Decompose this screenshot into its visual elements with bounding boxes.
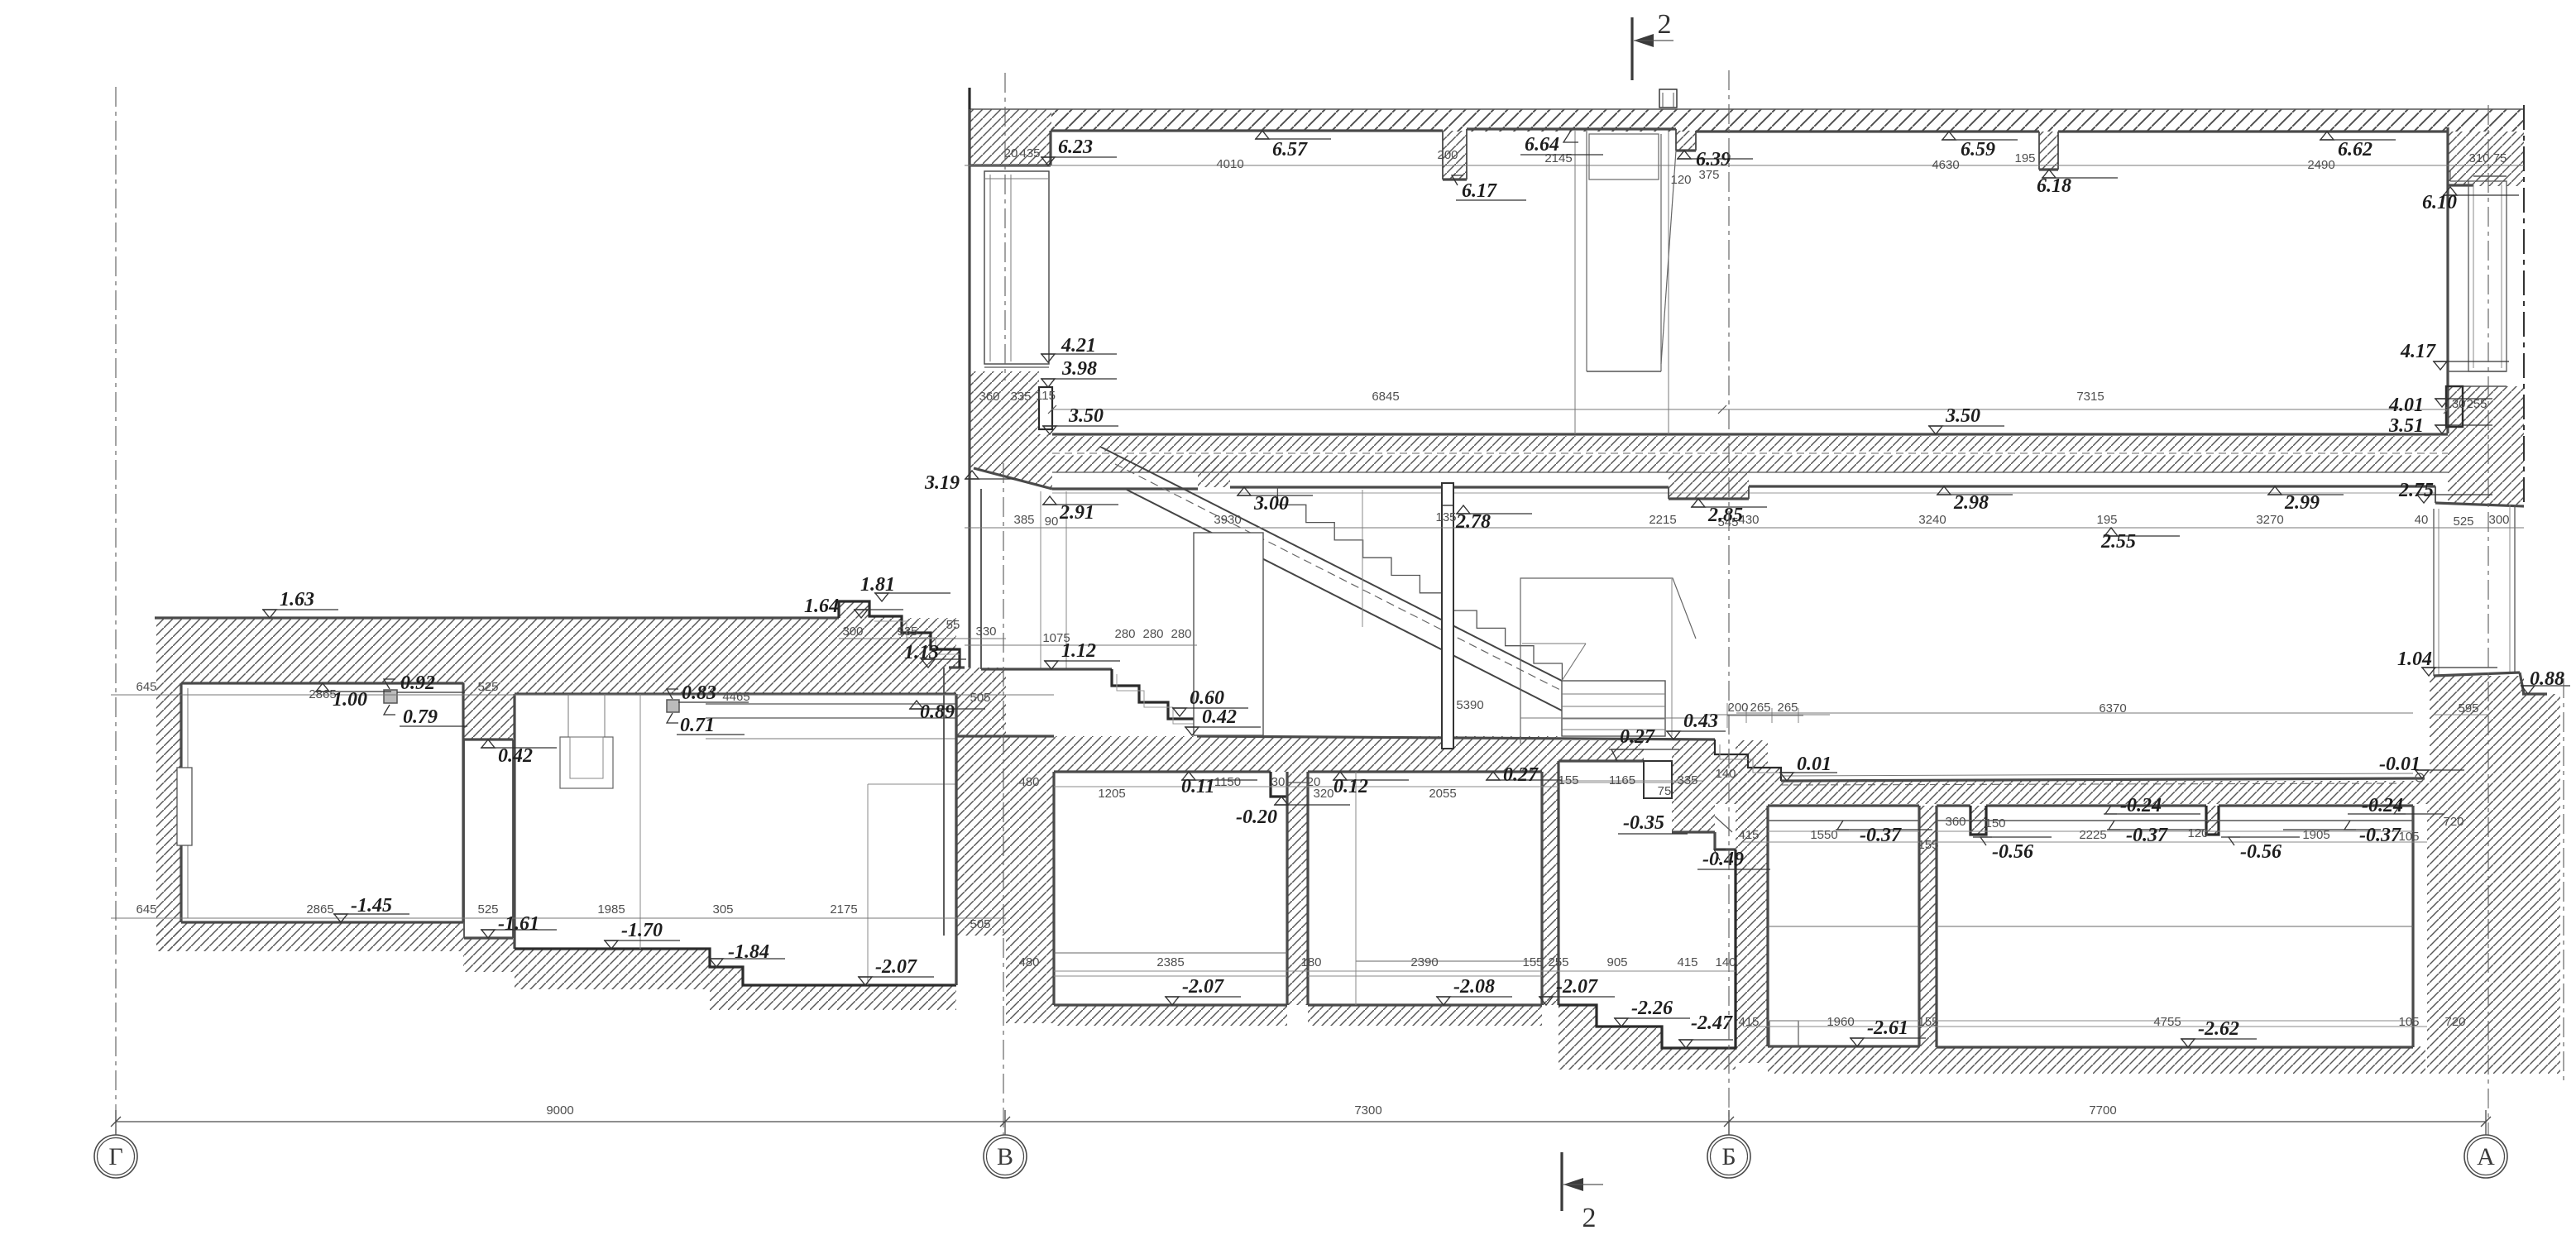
svg-text:-2.07: -2.07 — [1182, 976, 1224, 998]
svg-text:1.04: 1.04 — [2397, 649, 2432, 670]
svg-text:-0.24: -0.24 — [2120, 795, 2162, 816]
svg-text:-0.01: -0.01 — [2379, 754, 2420, 775]
svg-text:4.21: 4.21 — [1061, 335, 1096, 357]
svg-text:1.00: 1.00 — [333, 689, 367, 711]
svg-text:-0.56: -0.56 — [2240, 841, 2282, 863]
svg-text:335: 335 — [1677, 773, 1697, 787]
svg-text:2.85: 2.85 — [1707, 505, 1743, 526]
svg-text:4.17: 4.17 — [2400, 341, 2436, 362]
svg-text:-2.26: -2.26 — [1631, 998, 1673, 1019]
svg-text:75: 75 — [2493, 151, 2507, 165]
svg-text:1150: 1150 — [1214, 775, 1241, 789]
svg-text:265: 265 — [1777, 701, 1798, 715]
svg-text:6.59: 6.59 — [1961, 139, 1995, 160]
svg-text:-0.56: -0.56 — [1992, 841, 2033, 863]
svg-text:6.57: 6.57 — [1272, 139, 1308, 160]
svg-text:180: 180 — [1300, 955, 1321, 969]
svg-text:0.42: 0.42 — [498, 745, 533, 767]
svg-text:415: 415 — [1738, 1015, 1759, 1029]
svg-text:435: 435 — [1019, 146, 1040, 160]
svg-text:305: 305 — [712, 902, 733, 917]
svg-text:2.98: 2.98 — [1953, 492, 1989, 514]
svg-text:0.01: 0.01 — [1797, 754, 1831, 775]
svg-text:120: 120 — [2187, 826, 2208, 840]
svg-text:2215: 2215 — [1649, 513, 1676, 527]
svg-text:2.75: 2.75 — [2398, 480, 2434, 501]
svg-text:2.55: 2.55 — [2100, 531, 2136, 553]
svg-text:6845: 6845 — [1372, 390, 1399, 404]
svg-text:2: 2 — [1582, 1203, 1597, 1233]
svg-text:1.12: 1.12 — [1061, 640, 1096, 662]
svg-text:280: 280 — [1142, 627, 1163, 641]
svg-text:-0.49: -0.49 — [1702, 849, 1744, 870]
svg-text:480: 480 — [1018, 775, 1039, 789]
svg-text:525: 525 — [2453, 515, 2473, 529]
svg-text:115: 115 — [1036, 389, 1056, 403]
svg-text:1960: 1960 — [1827, 1015, 1854, 1029]
svg-text:1550: 1550 — [1810, 828, 1837, 842]
svg-text:0.88: 0.88 — [2530, 668, 2564, 690]
svg-text:6.10: 6.10 — [2422, 192, 2457, 213]
svg-text:-2.07: -2.07 — [875, 956, 917, 978]
svg-text:7700: 7700 — [2089, 1103, 2116, 1118]
svg-text:360: 360 — [979, 390, 999, 404]
svg-text:155: 155 — [1522, 955, 1543, 969]
svg-text:40: 40 — [2415, 513, 2429, 527]
svg-text:6.39: 6.39 — [1696, 149, 1731, 170]
svg-text:3.98: 3.98 — [1061, 358, 1097, 380]
svg-text:0.89: 0.89 — [920, 701, 955, 723]
svg-text:1205: 1205 — [1098, 787, 1125, 801]
svg-text:2.99: 2.99 — [2284, 492, 2320, 514]
svg-text:6370: 6370 — [2099, 701, 2126, 716]
svg-text:0.27: 0.27 — [1503, 764, 1539, 786]
svg-text:6.17: 6.17 — [1462, 180, 1497, 202]
svg-text:525: 525 — [477, 680, 498, 694]
svg-text:105: 105 — [2398, 830, 2419, 844]
svg-text:2175: 2175 — [830, 902, 857, 917]
svg-text:2: 2 — [1658, 9, 1672, 40]
svg-text:В: В — [997, 1143, 1013, 1170]
svg-text:55: 55 — [946, 618, 960, 632]
svg-text:5390: 5390 — [1456, 698, 1483, 712]
svg-text:280: 280 — [1171, 627, 1191, 641]
svg-text:415: 415 — [1677, 955, 1697, 969]
svg-text:195: 195 — [2096, 513, 2117, 527]
svg-text:-0.20: -0.20 — [1236, 806, 1277, 828]
svg-text:3.00: 3.00 — [1253, 493, 1289, 515]
svg-text:155: 155 — [1918, 838, 1938, 852]
svg-text:330: 330 — [975, 625, 996, 639]
svg-text:0.79: 0.79 — [403, 706, 438, 728]
svg-text:195: 195 — [2014, 151, 2035, 165]
svg-text:720: 720 — [2444, 1015, 2465, 1029]
svg-text:200: 200 — [1437, 148, 1458, 162]
svg-text:0.71: 0.71 — [680, 715, 715, 736]
svg-text:3240: 3240 — [1918, 513, 1946, 527]
svg-text:1165: 1165 — [1609, 773, 1635, 787]
svg-text:-1.84: -1.84 — [728, 941, 769, 963]
svg-text:1.13: 1.13 — [904, 642, 939, 663]
svg-text:140: 140 — [1715, 955, 1736, 969]
svg-text:255: 255 — [1548, 955, 1568, 969]
svg-text:480: 480 — [1018, 955, 1039, 969]
svg-text:4010: 4010 — [1216, 157, 1243, 171]
svg-text:-2.08: -2.08 — [1453, 976, 1495, 998]
svg-text:Г: Г — [108, 1143, 122, 1170]
svg-text:-0.37: -0.37 — [2359, 825, 2401, 846]
svg-text:3.50: 3.50 — [1068, 405, 1104, 427]
svg-text:20: 20 — [1004, 146, 1018, 160]
svg-text:0.42: 0.42 — [1202, 706, 1237, 728]
svg-text:0.92: 0.92 — [400, 672, 435, 694]
svg-text:595: 595 — [2458, 701, 2478, 716]
svg-text:-1.61: -1.61 — [498, 913, 539, 935]
svg-text:0.83: 0.83 — [682, 682, 716, 704]
svg-text:300: 300 — [2488, 513, 2509, 527]
svg-text:120: 120 — [1670, 173, 1691, 187]
svg-text:320: 320 — [1313, 787, 1333, 801]
svg-text:300: 300 — [842, 625, 863, 639]
svg-text:905: 905 — [1606, 955, 1627, 969]
svg-text:90: 90 — [1045, 515, 1059, 529]
svg-text:2390: 2390 — [1410, 955, 1438, 969]
svg-text:-1.70: -1.70 — [621, 920, 663, 941]
svg-text:6.18: 6.18 — [2037, 175, 2071, 197]
svg-text:3.51: 3.51 — [2388, 415, 2424, 437]
svg-text:1985: 1985 — [597, 902, 625, 917]
svg-text:0.11: 0.11 — [1181, 776, 1215, 797]
svg-text:6.23: 6.23 — [1058, 136, 1093, 158]
svg-text:155: 155 — [1918, 1015, 1938, 1029]
svg-text:9000: 9000 — [546, 1103, 573, 1118]
svg-text:385: 385 — [1013, 513, 1034, 527]
svg-text:140: 140 — [1715, 767, 1736, 781]
svg-text:2865: 2865 — [306, 902, 333, 917]
svg-text:3270: 3270 — [2256, 513, 2283, 527]
svg-text:335: 335 — [1010, 390, 1031, 404]
svg-text:135: 135 — [1435, 510, 1456, 524]
svg-text:6.62: 6.62 — [2338, 139, 2373, 160]
svg-text:-1.45: -1.45 — [351, 895, 392, 917]
svg-text:3.50: 3.50 — [1945, 405, 1980, 427]
svg-text:265: 265 — [1750, 701, 1770, 715]
svg-text:415: 415 — [1738, 828, 1759, 842]
svg-text:-0.37: -0.37 — [2126, 825, 2168, 846]
svg-text:4755: 4755 — [2153, 1015, 2181, 1029]
svg-text:200: 200 — [1727, 701, 1748, 715]
svg-text:150: 150 — [1985, 816, 2005, 830]
svg-text:2225: 2225 — [2079, 828, 2106, 842]
svg-text:645: 645 — [136, 680, 156, 694]
svg-text:360: 360 — [1945, 815, 1966, 829]
svg-text:2490: 2490 — [2307, 158, 2334, 172]
svg-text:А: А — [2477, 1143, 2495, 1170]
svg-text:935: 935 — [897, 625, 917, 639]
svg-text:2055: 2055 — [1429, 787, 1456, 801]
svg-text:-0.35: -0.35 — [1623, 812, 1664, 834]
svg-text:0.43: 0.43 — [1683, 711, 1718, 732]
svg-text:-2.61: -2.61 — [1867, 1017, 1908, 1039]
svg-text:7315: 7315 — [2076, 390, 2104, 404]
svg-text:75: 75 — [1658, 784, 1672, 798]
svg-text:30: 30 — [1271, 775, 1286, 789]
svg-text:525: 525 — [477, 902, 498, 917]
svg-text:2.78: 2.78 — [1455, 511, 1491, 533]
svg-text:3930: 3930 — [1214, 513, 1241, 527]
svg-text:4630: 4630 — [1932, 158, 1959, 172]
svg-text:1.64: 1.64 — [804, 596, 839, 617]
svg-text:645: 645 — [136, 902, 156, 917]
svg-text:0.27: 0.27 — [1620, 726, 1655, 748]
svg-text:1.81: 1.81 — [860, 574, 895, 596]
svg-text:-2.07: -2.07 — [1556, 976, 1598, 998]
svg-text:280: 280 — [1114, 627, 1135, 641]
svg-text:720: 720 — [2443, 815, 2463, 829]
svg-text:-0.37: -0.37 — [1860, 825, 1902, 846]
svg-text:310: 310 — [2468, 151, 2489, 165]
svg-text:0.12: 0.12 — [1333, 776, 1368, 797]
svg-text:105: 105 — [2398, 1015, 2419, 1029]
svg-text:3.19: 3.19 — [924, 472, 960, 494]
svg-text:-0.24: -0.24 — [2362, 795, 2403, 816]
svg-text:505: 505 — [970, 691, 990, 705]
svg-text:6.64: 6.64 — [1525, 134, 1559, 156]
svg-text:7300: 7300 — [1354, 1103, 1381, 1118]
svg-text:2.91: 2.91 — [1059, 502, 1094, 524]
svg-text:Б: Б — [1721, 1143, 1736, 1170]
svg-text:2385: 2385 — [1156, 955, 1184, 969]
svg-text:-2.47: -2.47 — [1691, 1012, 1733, 1034]
svg-text:505: 505 — [970, 917, 990, 931]
svg-text:1.63: 1.63 — [280, 589, 314, 610]
svg-text:-2.62: -2.62 — [2198, 1018, 2239, 1040]
svg-text:4.01: 4.01 — [2388, 395, 2424, 416]
